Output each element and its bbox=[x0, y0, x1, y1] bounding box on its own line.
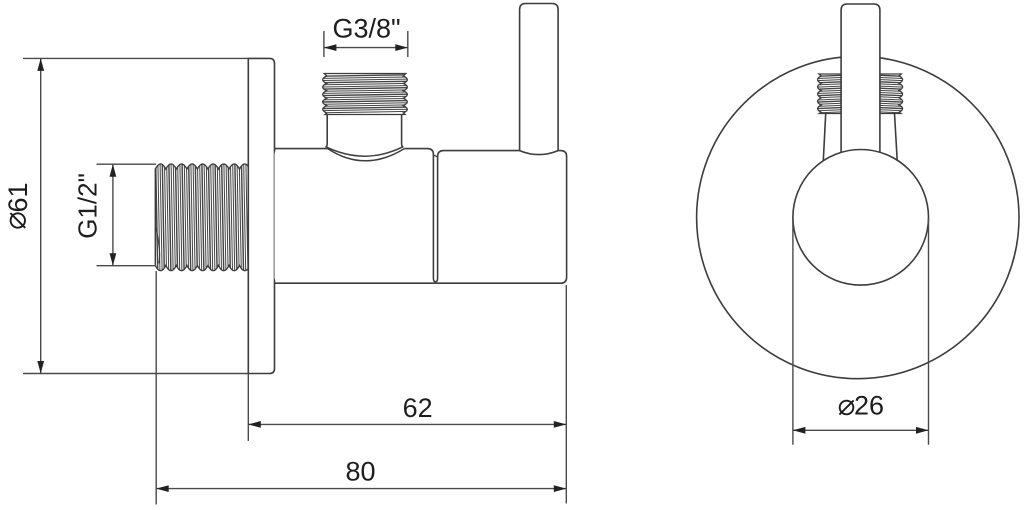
svg-text:61: 61 bbox=[3, 182, 33, 212]
svg-text:62: 62 bbox=[403, 393, 433, 423]
svg-text:G1/2": G1/2" bbox=[73, 173, 103, 239]
svg-text:26: 26 bbox=[854, 391, 884, 421]
svg-text:G3/8": G3/8" bbox=[332, 14, 400, 44]
svg-text:80: 80 bbox=[345, 457, 375, 487]
